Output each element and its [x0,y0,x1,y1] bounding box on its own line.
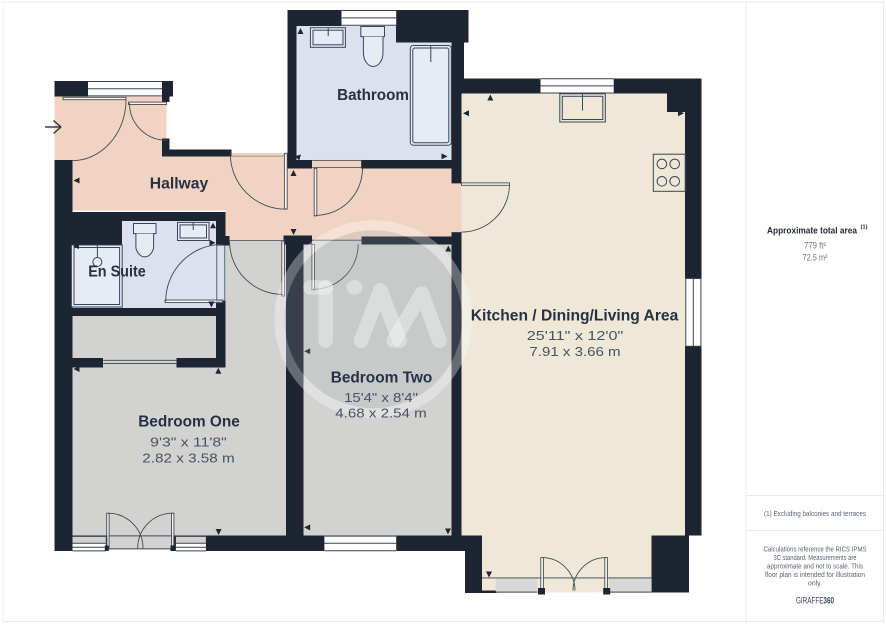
svg-text:7.91 x 3.66 m: 7.91 x 3.66 m [529,344,620,359]
svg-text:25'11" x 12'0": 25'11" x 12'0" [527,328,624,343]
svg-text:2.82 x 3.58 m: 2.82 x 3.58 m [142,451,234,466]
svg-text:(1): (1) [861,225,868,231]
svg-text:Bathroom: Bathroom [337,87,409,104]
svg-text:GIRAFFE360: GIRAFFE360 [796,596,834,606]
svg-text:(1) Excluding balconies and te: (1) Excluding balconies and terraces [764,509,866,518]
svg-text:En Suite: En Suite [88,263,146,280]
svg-text:Hallway: Hallway [150,175,209,192]
svg-text:9'3" x 11'8": 9'3" x 11'8" [150,435,227,450]
svg-text:Approximate total area: Approximate total area [767,225,858,236]
svg-text:only.: only. [808,578,822,587]
svg-text:Bedroom One: Bedroom One [138,413,240,430]
svg-text:15'4" x 8'4": 15'4" x 8'4" [344,390,418,405]
svg-text:Bedroom Two: Bedroom Two [331,369,433,386]
svg-text:4.68 x 2.54 m: 4.68 x 2.54 m [335,406,426,421]
svg-text:Kitchen / Dining/Living Area: Kitchen / Dining/Living Area [471,308,679,325]
svg-text:779 ft²: 779 ft² [804,241,826,251]
svg-text:72.5 m²: 72.5 m² [803,253,828,263]
